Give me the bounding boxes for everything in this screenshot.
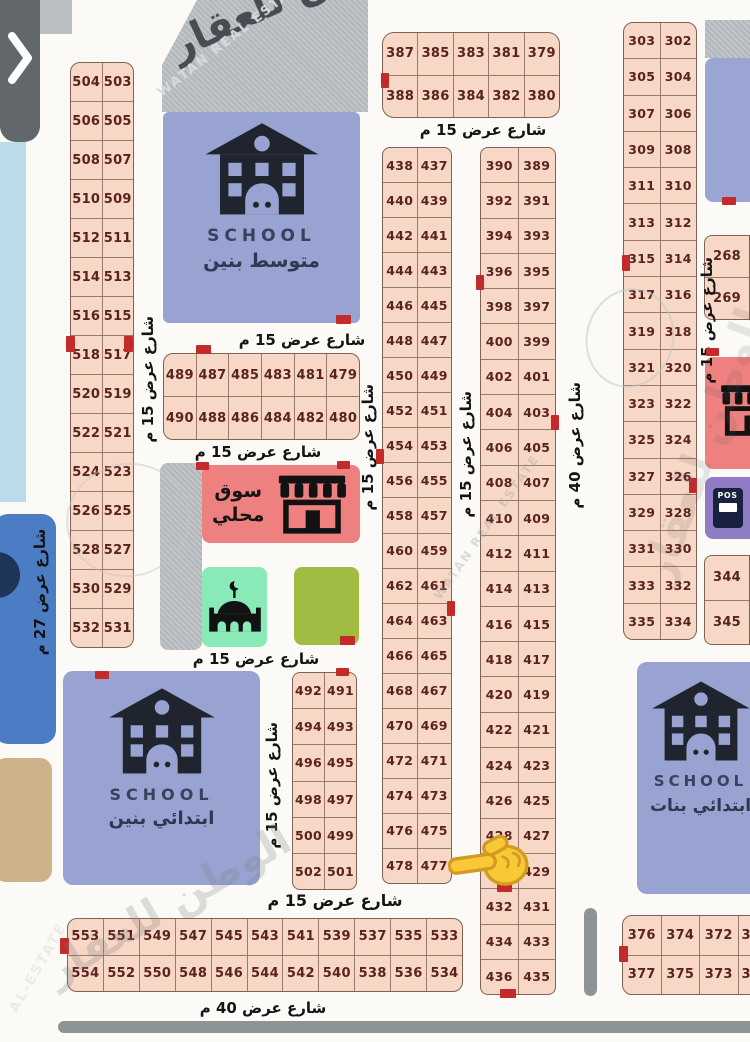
plot-307[interactable]: 307 <box>624 96 660 131</box>
plot-row: 470469 <box>383 708 451 743</box>
plot-row: 454453 <box>383 427 451 462</box>
plot-row: 532531 <box>71 608 133 647</box>
plot-411[interactable]: 411 <box>518 536 556 570</box>
plot-row: 504503 <box>71 63 133 101</box>
plot-409[interactable]: 409 <box>518 501 556 535</box>
plot-538[interactable]: 538 <box>354 956 390 992</box>
plot-420[interactable]: 420 <box>481 677 518 711</box>
parking-strip-market <box>160 463 202 650</box>
plot-530[interactable]: 530 <box>71 570 102 608</box>
plot-333[interactable]: 333 <box>624 567 660 602</box>
plot-344[interactable]: 344 <box>705 556 749 600</box>
plot-435[interactable]: 435 <box>518 960 556 994</box>
plot-501[interactable]: 501 <box>324 854 356 889</box>
plot-384[interactable]: 384 <box>453 76 488 118</box>
plot-row: 418417 <box>481 641 555 676</box>
plot-412[interactable]: 412 <box>481 536 518 570</box>
plot-483[interactable]: 483 <box>261 354 294 396</box>
plot-478[interactable]: 478 <box>383 849 417 883</box>
plot-row: 315314 <box>624 240 696 276</box>
plot-422[interactable]: 422 <box>481 713 518 747</box>
plot-row: 398397 <box>481 288 555 323</box>
school-label-ar: ابتدائي بنين <box>109 808 215 829</box>
plot-316[interactable]: 316 <box>660 277 697 312</box>
plot-row: 426425 <box>481 782 555 817</box>
plot-496[interactable]: 496 <box>293 745 324 780</box>
plot-493[interactable]: 493 <box>324 709 356 744</box>
plot-404[interactable]: 404 <box>481 395 518 429</box>
plot-406[interactable]: 406 <box>481 430 518 464</box>
plot-row: 404403 <box>481 394 555 429</box>
plot-547[interactable]: 547 <box>175 919 211 955</box>
plot-row: 456455 <box>383 462 451 497</box>
plot-310[interactable]: 310 <box>660 168 697 203</box>
entrance-marker <box>381 73 389 88</box>
plot-498[interactable]: 498 <box>293 782 324 817</box>
plot-554[interactable]: 554 <box>68 956 103 992</box>
plot-398[interactable]: 398 <box>481 289 518 323</box>
plot-row: 323322 <box>624 385 696 421</box>
plot-451[interactable]: 451 <box>417 393 452 427</box>
plot-542[interactable]: 542 <box>282 956 318 992</box>
plot-row: 496495 <box>293 744 356 780</box>
plot-504[interactable]: 504 <box>71 63 102 101</box>
plot-392[interactable]: 392 <box>481 183 518 217</box>
plot-328[interactable]: 328 <box>660 495 697 530</box>
plot-410[interactable]: 410 <box>481 501 518 535</box>
plot-500[interactable]: 500 <box>293 818 324 853</box>
plot-489[interactable]: 489 <box>164 354 196 396</box>
plot-459[interactable]: 459 <box>417 534 452 568</box>
plot-386[interactable]: 386 <box>417 76 452 118</box>
plot-345[interactable]: 345 <box>705 601 749 645</box>
school-label-en: SCHOOL <box>207 226 316 246</box>
plot-row: 490488486484482480 <box>164 396 359 439</box>
plot-row: 3763743723 <box>623 916 750 955</box>
plot-390[interactable]: 390 <box>481 148 518 182</box>
plot-377[interactable]: 377 <box>623 956 661 995</box>
plot-332[interactable]: 332 <box>660 567 697 602</box>
plot-464[interactable]: 464 <box>383 604 417 638</box>
plot-533[interactable]: 533 <box>426 919 462 955</box>
plot-518[interactable]: 518 <box>71 336 102 374</box>
plot-414[interactable]: 414 <box>481 572 518 606</box>
plot-503[interactable]: 503 <box>102 63 134 101</box>
plot-497[interactable]: 497 <box>324 782 356 817</box>
entrance-marker <box>376 449 384 464</box>
plot-432[interactable]: 432 <box>481 889 518 923</box>
plot-469[interactable]: 469 <box>417 709 452 743</box>
plot-324[interactable]: 324 <box>660 422 697 457</box>
plot-302[interactable]: 302 <box>660 23 697 58</box>
plot-457[interactable]: 457 <box>417 498 452 532</box>
plot-311[interactable]: 311 <box>624 168 660 203</box>
plot-380[interactable]: 380 <box>524 76 559 118</box>
plot-407[interactable]: 407 <box>518 466 556 500</box>
plot-block-480s: 489487485483481479490488486484482480 <box>163 353 360 440</box>
plot-491[interactable]: 491 <box>324 673 356 708</box>
plot-482[interactable]: 482 <box>294 397 327 439</box>
plot-521[interactable]: 521 <box>102 414 134 452</box>
plot-539[interactable]: 539 <box>318 919 354 955</box>
mosque-block <box>202 567 267 647</box>
plot-379[interactable]: 379 <box>524 33 559 75</box>
plot-391[interactable]: 391 <box>518 183 556 217</box>
plot-460[interactable]: 460 <box>383 534 417 568</box>
entrance-marker <box>340 636 355 645</box>
plot-327[interactable]: 327 <box>624 459 660 494</box>
plot-393[interactable]: 393 <box>518 219 556 253</box>
plot-block-right-column: 3033023053043073063093083113103133123153… <box>623 22 697 640</box>
plot-413[interactable]: 413 <box>518 572 556 606</box>
plot-row: 3773753733 <box>623 955 750 995</box>
plot-470[interactable]: 470 <box>383 709 417 743</box>
entrance-marker <box>500 989 516 998</box>
plot-492[interactable]: 492 <box>293 673 324 708</box>
plot-row: 526525 <box>71 491 133 530</box>
plot-row: 553551549547545543541539537535533 <box>68 919 462 955</box>
plot-row: 416415 <box>481 606 555 641</box>
plot-472[interactable]: 472 <box>383 744 417 778</box>
plot-528[interactable]: 528 <box>71 531 102 569</box>
plot-block-bottom-left: 5535515495475455435415395375355335545525… <box>67 918 463 992</box>
plot-416[interactable]: 416 <box>481 607 518 641</box>
plot-550[interactable]: 550 <box>139 956 175 992</box>
plot-441[interactable]: 441 <box>417 218 452 252</box>
plot-522[interactable]: 522 <box>71 414 102 452</box>
plot-320[interactable]: 320 <box>660 350 697 385</box>
plot-476[interactable]: 476 <box>383 814 417 848</box>
plot-313[interactable]: 313 <box>624 204 660 239</box>
plot-480[interactable]: 480 <box>326 397 359 439</box>
plot-335[interactable]: 335 <box>624 604 660 639</box>
plot-516[interactable]: 516 <box>71 297 102 335</box>
plot-544[interactable]: 544 <box>247 956 283 992</box>
plot-331[interactable]: 331 <box>624 531 660 566</box>
plot-438[interactable]: 438 <box>383 148 417 182</box>
street-label: شارع عرض 15 م <box>139 316 157 436</box>
plot-314[interactable]: 314 <box>660 241 697 276</box>
plot-445[interactable]: 445 <box>417 288 452 322</box>
plot-529[interactable]: 529 <box>102 570 134 608</box>
plot-494[interactable]: 494 <box>293 709 324 744</box>
plot-463[interactable]: 463 <box>417 604 452 638</box>
plot-row: 492491 <box>293 673 356 708</box>
plot-row: 500499 <box>293 817 356 853</box>
plot-381[interactable]: 381 <box>488 33 523 75</box>
plot-402[interactable]: 402 <box>481 360 518 394</box>
plot-525[interactable]: 525 <box>102 492 134 530</box>
plot-515[interactable]: 515 <box>102 297 134 335</box>
street-label: شارع عرض 15 م <box>268 891 403 910</box>
plot-row: 514513 <box>71 257 133 296</box>
plot-447[interactable]: 447 <box>417 323 452 357</box>
plot-465[interactable]: 465 <box>417 639 452 673</box>
plot-385[interactable]: 385 <box>417 33 452 75</box>
entrance-marker <box>196 345 211 354</box>
plot-514[interactable]: 514 <box>71 258 102 296</box>
plot-421[interactable]: 421 <box>518 713 556 747</box>
plot-row: 489487485483481479 <box>164 354 359 396</box>
plot-row: 388386384382380 <box>383 75 559 118</box>
school-label-en: SCHOOL <box>109 785 213 804</box>
plot-461[interactable]: 461 <box>417 569 452 603</box>
plot-495[interactable]: 495 <box>324 745 356 780</box>
plot-449[interactable]: 449 <box>417 358 452 392</box>
plot-row: 325324 <box>624 421 696 457</box>
street-label: شارع عرض 15 م <box>420 121 547 139</box>
plot-508[interactable]: 508 <box>71 141 102 179</box>
plot-507[interactable]: 507 <box>102 141 134 179</box>
plot-375[interactable]: 375 <box>661 956 700 995</box>
plot-548[interactable]: 548 <box>175 956 211 992</box>
plot-row: 530529 <box>71 569 133 608</box>
plot-383[interactable]: 383 <box>453 33 488 75</box>
plot-row: 406405 <box>481 429 555 464</box>
plot-424[interactable]: 424 <box>481 748 518 782</box>
plot-423[interactable]: 423 <box>518 748 556 782</box>
plot-319[interactable]: 319 <box>624 313 660 348</box>
plot-map-canvas: SCHOOL متوسط بنين SCHOOL ابتدائي بنين SC… <box>0 0 750 1042</box>
plot-row: 502501 <box>293 853 356 889</box>
plot-372[interactable]: 372 <box>699 916 738 955</box>
plot-523[interactable]: 523 <box>102 453 134 491</box>
plot-458[interactable]: 458 <box>383 498 417 532</box>
plot-row: 392391 <box>481 182 555 217</box>
plot-425[interactable]: 425 <box>518 783 556 817</box>
plot-row: 420419 <box>481 676 555 711</box>
plot-532[interactable]: 532 <box>71 609 102 647</box>
plot-433[interactable]: 433 <box>518 925 556 959</box>
plot-row: 327326 <box>624 458 696 494</box>
entrance-marker <box>336 315 351 324</box>
plot-443[interactable]: 443 <box>417 253 452 287</box>
plot-303[interactable]: 303 <box>624 23 660 58</box>
plot-322[interactable]: 322 <box>660 386 697 421</box>
plot-505[interactable]: 505 <box>102 102 134 140</box>
plot-row: 434433 <box>481 924 555 959</box>
plot-454[interactable]: 454 <box>383 428 417 462</box>
plot-308[interactable]: 308 <box>660 132 697 167</box>
market-icon <box>717 373 750 447</box>
plot-396[interactable]: 396 <box>481 254 518 288</box>
plot-439[interactable]: 439 <box>417 183 452 217</box>
plot-519[interactable]: 519 <box>102 375 134 413</box>
plot-466[interactable]: 466 <box>383 639 417 673</box>
plot-426[interactable]: 426 <box>481 783 518 817</box>
plot-434[interactable]: 434 <box>481 925 518 959</box>
plot-484[interactable]: 484 <box>261 397 294 439</box>
plot-395[interactable]: 395 <box>518 254 556 288</box>
plot-373[interactable]: 373 <box>699 956 738 995</box>
plot-row: 400399 <box>481 323 555 358</box>
plot-row: 390389 <box>481 148 555 182</box>
plot-312[interactable]: 312 <box>660 204 697 239</box>
plot-537[interactable]: 537 <box>354 919 390 955</box>
plot-row: 444443 <box>383 252 451 287</box>
entrance-marker <box>447 601 455 616</box>
plot-545[interactable]: 545 <box>211 919 247 955</box>
plot-374[interactable]: 374 <box>661 916 700 955</box>
plot-397[interactable]: 397 <box>518 289 556 323</box>
plot-531[interactable]: 531 <box>102 609 134 647</box>
plot-382[interactable]: 382 <box>488 76 523 118</box>
plot-323[interactable]: 323 <box>624 386 660 421</box>
panel-collapse-button[interactable] <box>0 0 40 142</box>
plot-400[interactable]: 400 <box>481 324 518 358</box>
plot-329[interactable]: 329 <box>624 495 660 530</box>
plot-417[interactable]: 417 <box>518 642 556 676</box>
plot-row: 460459 <box>383 533 451 568</box>
plot-304[interactable]: 304 <box>660 59 697 94</box>
plot-305[interactable]: 305 <box>624 59 660 94</box>
plot-317[interactable]: 317 <box>624 277 660 312</box>
plot-row: 440439 <box>383 182 451 217</box>
plot-387[interactable]: 387 <box>383 33 417 75</box>
plot-510[interactable]: 510 <box>71 180 102 218</box>
plot-3[interactable]: 3 <box>738 956 750 995</box>
entrance-marker <box>60 938 69 954</box>
plot-row: 438437 <box>383 148 451 182</box>
plot-456[interactable]: 456 <box>383 463 417 497</box>
plot-488[interactable]: 488 <box>196 397 229 439</box>
plot-415[interactable]: 415 <box>518 607 556 641</box>
plot-325[interactable]: 325 <box>624 422 660 457</box>
plot-401[interactable]: 401 <box>518 360 556 394</box>
plot-551[interactable]: 551 <box>103 919 139 955</box>
plot-440[interactable]: 440 <box>383 183 417 217</box>
entrance-marker <box>622 255 630 271</box>
plot-453[interactable]: 453 <box>417 428 452 462</box>
plot-452[interactable]: 452 <box>383 393 417 427</box>
plot-485[interactable]: 485 <box>228 354 261 396</box>
entrance-marker <box>476 275 484 290</box>
plot-row: 506505 <box>71 101 133 140</box>
plot-534[interactable]: 534 <box>426 956 462 992</box>
plot-444[interactable]: 444 <box>383 253 417 287</box>
plot-431[interactable]: 431 <box>518 889 556 923</box>
plot-552[interactable]: 552 <box>103 956 139 992</box>
plot-549[interactable]: 549 <box>139 919 175 955</box>
street-label: شارع عرض 15 م <box>239 331 366 349</box>
map-edge-gray <box>40 0 72 34</box>
plot-row: 450449 <box>383 357 451 392</box>
plot-546[interactable]: 546 <box>211 956 247 992</box>
plot-389[interactable]: 389 <box>518 148 556 182</box>
plot-448[interactable]: 448 <box>383 323 417 357</box>
plot-481[interactable]: 481 <box>294 354 327 396</box>
plot-524[interactable]: 524 <box>71 453 102 491</box>
plot-450[interactable]: 450 <box>383 358 417 392</box>
market-label-line1: سوق <box>212 480 264 504</box>
plot-526[interactable]: 526 <box>71 492 102 530</box>
plot-row: 329328 <box>624 494 696 530</box>
plot-row: 331330 <box>624 530 696 566</box>
plot-446[interactable]: 446 <box>383 288 417 322</box>
plot-513[interactable]: 513 <box>102 258 134 296</box>
plot-405[interactable]: 405 <box>518 430 556 464</box>
plot-506[interactable]: 506 <box>71 102 102 140</box>
plot-418[interactable]: 418 <box>481 642 518 676</box>
plot-455[interactable]: 455 <box>417 463 452 497</box>
plot-306[interactable]: 306 <box>660 96 697 131</box>
plot-row: 303302 <box>624 23 696 58</box>
plot-468[interactable]: 468 <box>383 674 417 708</box>
plot-511[interactable]: 511 <box>102 219 134 257</box>
plot-499[interactable]: 499 <box>324 818 356 853</box>
plot-row: 305304 <box>624 58 696 94</box>
plot-row: 494493 <box>293 708 356 744</box>
plot-row: 474473 <box>383 778 451 813</box>
plot-536[interactable]: 536 <box>390 956 426 992</box>
plot-502[interactable]: 502 <box>293 854 324 889</box>
street-label: شارع عرض 27 م <box>31 527 49 657</box>
plot-543[interactable]: 543 <box>247 919 283 955</box>
plot-3[interactable]: 3 <box>738 916 750 955</box>
market-icon <box>274 474 350 534</box>
plot-403[interactable]: 403 <box>518 395 556 429</box>
street-label: شارع عرض 15 م <box>698 257 716 377</box>
plot-467[interactable]: 467 <box>417 674 452 708</box>
plot-437[interactable]: 437 <box>417 148 452 182</box>
school-building-icon <box>202 122 322 218</box>
plot-487[interactable]: 487 <box>196 354 229 396</box>
plot-553[interactable]: 553 <box>68 919 103 955</box>
plot-479[interactable]: 479 <box>326 354 359 396</box>
plot-486[interactable]: 486 <box>228 397 261 439</box>
plot-row: 412411 <box>481 535 555 570</box>
plot-540[interactable]: 540 <box>318 956 354 992</box>
street-label: شارع عرض 15 م <box>193 650 320 668</box>
plot-394[interactable]: 394 <box>481 219 518 253</box>
plot-520[interactable]: 520 <box>71 375 102 413</box>
plot-330[interactable]: 330 <box>660 531 697 566</box>
school-building-icon <box>106 687 218 777</box>
plot-473[interactable]: 473 <box>417 779 452 813</box>
plot-row: 462461 <box>383 568 451 603</box>
plot-408[interactable]: 408 <box>481 466 518 500</box>
plot-row: 321320 <box>624 349 696 385</box>
entrance-marker <box>196 462 209 470</box>
plot-334[interactable]: 334 <box>660 604 697 639</box>
plot-376[interactable]: 376 <box>623 916 661 955</box>
water-strip <box>0 142 26 502</box>
plot-309[interactable]: 309 <box>624 132 660 167</box>
plot-509[interactable]: 509 <box>102 180 134 218</box>
plot-442[interactable]: 442 <box>383 218 417 252</box>
school-middle-boys: SCHOOL متوسط بنين <box>163 112 360 323</box>
plot-490[interactable]: 490 <box>164 397 196 439</box>
plot-419[interactable]: 419 <box>518 677 556 711</box>
plot-row: 508507 <box>71 140 133 179</box>
plot-318[interactable]: 318 <box>660 313 697 348</box>
plot-535[interactable]: 535 <box>390 919 426 955</box>
plot-row: 466465 <box>383 638 451 673</box>
plot-row: 402401 <box>481 359 555 394</box>
plot-321[interactable]: 321 <box>624 350 660 385</box>
entrance-marker <box>551 415 559 430</box>
plot-541[interactable]: 541 <box>282 919 318 955</box>
plot-527[interactable]: 527 <box>102 531 134 569</box>
plot-474[interactable]: 474 <box>383 779 417 813</box>
plot-471[interactable]: 471 <box>417 744 452 778</box>
plot-row: 464463 <box>383 603 451 638</box>
plot-399[interactable]: 399 <box>518 324 556 358</box>
plot-row: 432431 <box>481 888 555 923</box>
entrance-marker <box>95 671 109 679</box>
plot-462[interactable]: 462 <box>383 569 417 603</box>
plot-512[interactable]: 512 <box>71 219 102 257</box>
